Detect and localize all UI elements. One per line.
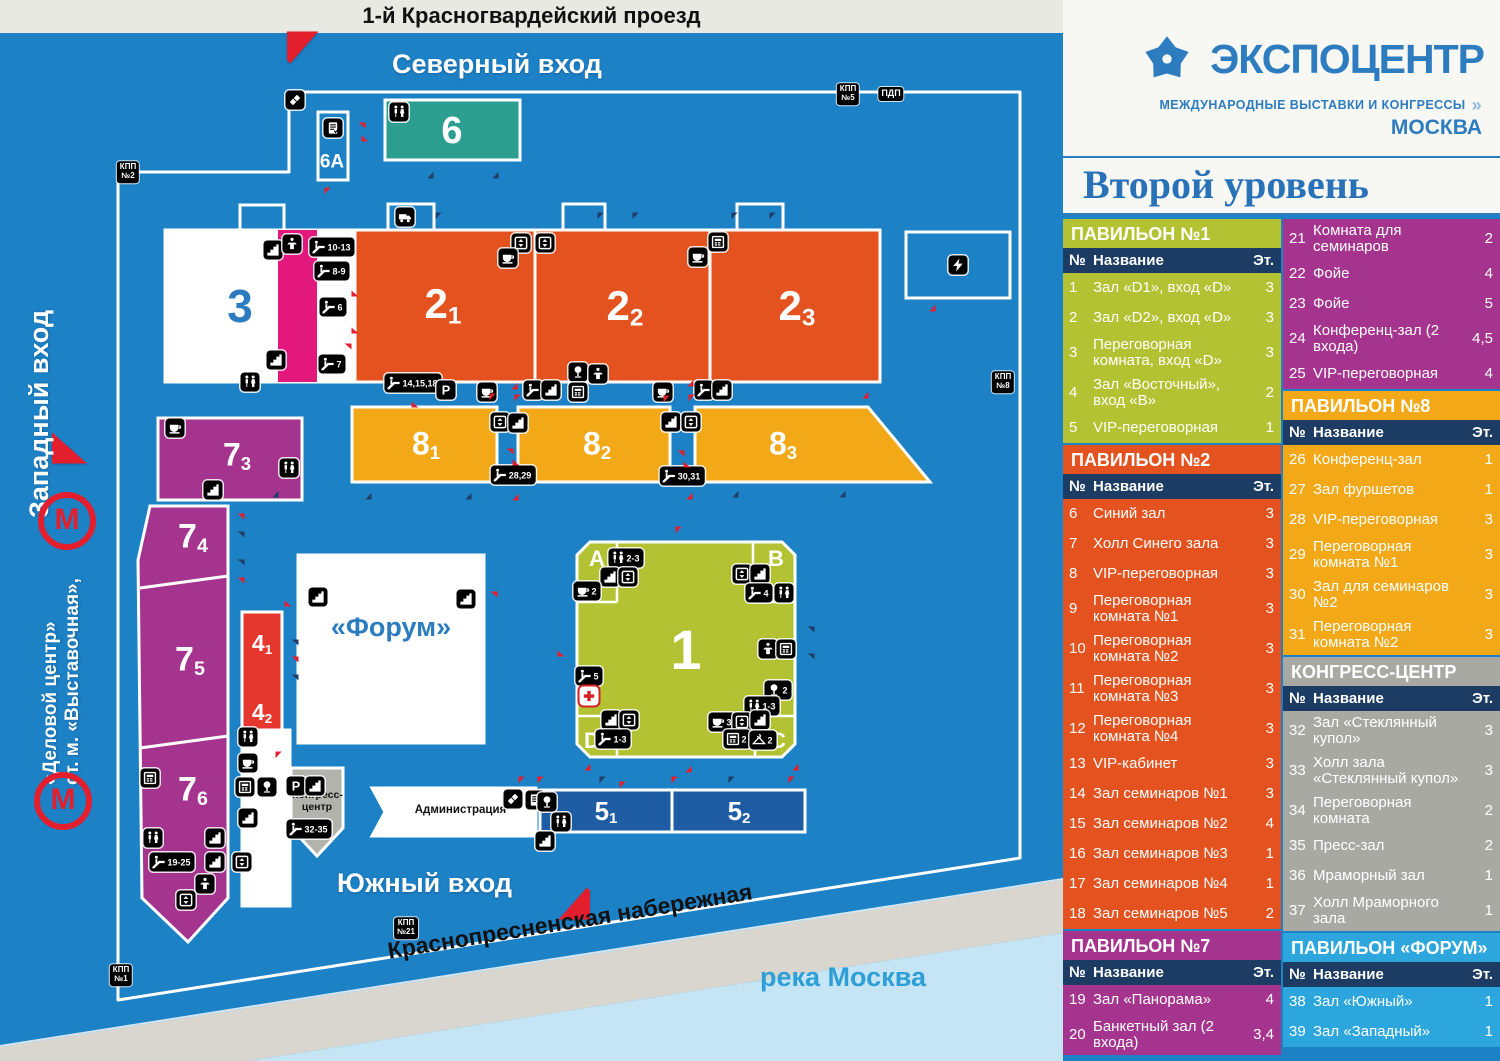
chevron-right-icon: » [1472,96,1482,114]
cell: 3 [1465,723,1500,739]
cell: Банкетный зал (2 входа) [1093,1019,1246,1051]
column-header: Название [1313,690,1465,707]
cell: 32 [1283,723,1313,739]
atm-icon [141,769,160,788]
cell: Зал «Южный» [1313,994,1465,1010]
legend-section-pav1: ПАВИЛЬОН №1№НазваниеЭт.1Зал «D1», вход «… [1063,219,1281,443]
building-label-82: 82 [583,428,611,463]
direction-arrow [362,125,379,142]
cell: Переговорная комната, вход «D» [1093,337,1246,369]
table-row: 8VIP-переговорная3 [1063,559,1281,589]
cell: Зал семинаров №3 [1093,846,1246,862]
building-label-3: 3 [227,283,253,329]
direction-arrow [262,481,279,498]
table-row: 32Зал «Стеклянный купол»3 [1283,711,1500,751]
building-label-1: 1 [670,622,701,678]
section-title: КОНГРЕСС-ЦЕНТР [1283,657,1500,686]
cell: 3 [1246,786,1281,802]
cell: 38 [1283,994,1313,1010]
table-row: 4Зал «Восточный», вход «В»2 [1063,373,1281,413]
table-row: 20Банкетный зал (2 входа)3,4 [1063,1015,1281,1055]
table-row: 39Зал «Западный»1 [1283,1017,1500,1047]
cell: Переговорная комната №1 [1313,539,1465,571]
table-header-row: №НазваниеЭт. [1283,686,1500,711]
direction-arrow [417,162,434,179]
table-header-row: №НазваниеЭт. [1063,474,1281,499]
cell: Конференц-зал [1313,452,1465,468]
table-row: 23Фойе5 [1283,289,1500,319]
lift-icon [536,234,555,253]
direction-arrow [285,590,302,607]
column-header: Название [1093,252,1246,269]
direction-arrow [770,213,787,230]
west-entrance-arrow [55,381,135,472]
direction-arrow [228,532,245,549]
cell: Фойе [1313,266,1465,282]
cell: Фойе [1313,296,1465,312]
cell: 21 [1283,231,1313,247]
direction-arrow [497,449,514,466]
table-row: 30Зал для семинаров №23 [1283,575,1500,615]
cell: 31 [1283,627,1313,643]
column-header: № [1063,478,1093,495]
legend-section-pav7cont: 21Комната для семинаров222Фойе423Фойе524… [1283,219,1500,389]
logo-tagline: МЕЖДУНАРОДНЫЕ ВЫСТАВКИ И КОНГРЕССЫ» [1063,92,1500,114]
cell: 25 [1283,366,1313,382]
cell: Синий зал [1093,506,1246,522]
cell: Переговорная комната №2 [1313,619,1465,651]
direction-arrow [798,627,815,644]
street-name-top: 1-й Красногвардейский проезд [0,0,1063,33]
cell: 3 [1063,345,1093,361]
cell: 1 [1465,903,1500,919]
cell: 35 [1283,838,1313,854]
table-row: 13VIP-кабинет3 [1063,749,1281,779]
building-label-22: 22 [607,285,644,331]
table-row: 37Холл Мраморного зала1 [1283,891,1500,931]
table-row: 18Зал семинаров №52 [1063,899,1281,929]
direction-arrow [633,213,650,230]
cell: 23 [1283,296,1313,312]
cell: VIP-переговорная [1093,566,1246,582]
cell: 15 [1063,816,1093,832]
direction-arrow [722,481,739,498]
direction-arrow [455,483,472,500]
direction-arrow [919,295,936,312]
cell: 4 [1465,366,1500,382]
cell: Зал «Восточный», вход «В» [1093,377,1246,409]
stairs-icon [267,351,286,370]
lift-icon [682,413,701,432]
legend-tables: ПАВИЛЬОН №1№НазваниеЭт.1Зал «D1», вход «… [1063,219,1500,1061]
cell: Зал «D2», вход «D» [1093,310,1246,326]
table-row: 28VIP-переговорная3 [1283,505,1500,535]
direction-arrow [515,395,532,412]
building-label-75: 75 [175,642,205,679]
direction-arrow [228,514,245,531]
building-label-73: 73 [223,439,251,474]
lift-icon [177,891,196,910]
building-7-tower [138,506,228,942]
direction-arrow [228,578,245,595]
cell: 5 [1465,296,1500,312]
cell: 2 [1465,803,1500,819]
direction-arrow [676,527,693,544]
cell: 16 [1063,846,1093,862]
atm-icon [709,233,728,252]
column-header: Эт. [1246,252,1281,269]
stairs-icon [662,413,681,432]
cup-icon [166,419,185,438]
cell: 5 [1063,420,1093,436]
column-header: Название [1093,964,1246,981]
wc-icon [390,103,409,122]
esc-icon: 1-3 [595,730,630,749]
table-row: 19Зал «Панорама»4 [1063,985,1281,1015]
direction-arrow [677,370,694,387]
cell: 3 [1246,756,1281,772]
esc-icon: 10-13 [309,238,354,257]
direction-arrow [335,344,352,361]
direction-arrow [664,396,681,413]
table-row: 36Мраморный зал1 [1283,861,1500,891]
cell: 13 [1063,756,1093,772]
building-label-41: 41 [252,632,272,656]
stairs-icon [204,481,223,500]
cell: 2 [1246,906,1281,922]
cell: 2 [1063,310,1093,326]
cell: 17 [1063,876,1093,892]
wc-icon [775,584,794,603]
building-label-21: 21 [425,283,462,329]
cell: 4 [1465,266,1500,282]
cell: 36 [1283,868,1313,884]
stairs-icon [713,381,732,400]
direction-arrow [436,213,453,230]
table-row: 38Зал «Южный»1 [1283,987,1500,1017]
direction-arrow [282,657,299,674]
building-label-23: 23 [779,285,816,331]
cell: 3 [1465,763,1500,779]
checkpoint-badge: КПП №8 [992,371,1014,393]
cell: 12 [1063,721,1093,737]
checkpoint-badge: КПП №21 [394,917,418,939]
building-label-42: 42 [252,701,272,725]
table-row: 2Зал «D2», вход «D»3 [1063,303,1281,333]
lift-icon [619,568,638,587]
cell: 1 [1465,994,1500,1010]
cell: Зал «D1», вход «D» [1093,280,1246,296]
legend-column-left: ПАВИЛЬОН №1№НазваниеЭт.1Зал «D1», вход «… [1063,219,1281,1061]
podium-icon [759,640,778,659]
section-title: ПАВИЛЬОН №2 [1063,445,1281,474]
cross-icon [580,687,599,706]
cell: 11 [1063,681,1093,697]
atm-icon: 2 [723,730,750,749]
stairs-icon [457,590,476,609]
esc-icon: 4 [745,584,772,603]
cell: Зал «Западный» [1313,1024,1465,1040]
stairs-icon [309,588,328,607]
table-row: 31Переговорная комната №23 [1283,615,1500,655]
direction-arrow [684,451,701,468]
table-row: 5VIP-переговорная1 [1063,413,1281,443]
table-header-row: №НазваниеЭт. [1283,420,1500,445]
reg-icon [324,119,343,138]
cell: 3 [1246,721,1281,737]
direction-arrow [600,777,617,794]
cell: 3 [1246,681,1281,697]
legend-section-pav2: ПАВИЛЬОН №2№НазваниеЭт.6Синий зал37Холл … [1063,445,1281,929]
cell: Переговорная комната №1 [1093,593,1246,625]
cell: 4 [1063,385,1093,401]
river-label: река Москва [760,962,926,993]
section-title: ПАВИЛЬОН №8 [1283,391,1500,420]
cell: 30 [1283,587,1313,603]
cell: 2 [1465,231,1500,247]
lift-icon [233,853,252,872]
wc-icon [144,829,163,848]
direction-arrow [675,756,692,773]
building-label-6A: 6A [320,153,344,172]
cell: 22 [1283,266,1313,282]
table-row: 21Комната для семинаров2 [1283,219,1500,259]
table-row: 11Переговорная комната №33 [1063,669,1281,709]
logo-area: ЭКСПОЦЕНТР МЕЖДУНАРОДНЫЕ ВЫСТАВКИ И КОНГ… [1063,0,1500,158]
direction-arrow [519,777,536,794]
building-label-76: 76 [178,772,208,809]
cup-icon: 2 [573,582,600,601]
cell: Пресс-зал [1313,838,1465,854]
table-row: 12Переговорная комната №43 [1063,709,1281,749]
column-header: Эт. [1465,424,1500,441]
legend-section-pav7: ПАВИЛЬОН №7№НазваниеЭт.19Зал «Панорама»4… [1063,931,1281,1055]
column-header: Эт. [1246,478,1281,495]
lift-icon [733,565,752,584]
cup-icon [239,754,258,773]
stairs-icon [206,829,225,848]
legend-column-right: 21Комната для семинаров222Фойе423Фойе524… [1283,219,1500,1061]
cell: 39 [1283,1024,1313,1040]
table-row: 16Зал семинаров №31 [1063,839,1281,869]
cell: Зал «Стеклянный купол» [1313,715,1465,747]
table-row: 29Переговорная комната №13 [1283,535,1500,575]
cell: Мраморный зал [1313,868,1465,884]
direction-arrow [620,782,637,799]
direction-arrow [481,592,498,609]
section-title: ПАВИЛЬОН №1 [1063,219,1281,248]
ticket-icon [286,91,305,110]
table-row: 6Синий зал3 [1063,499,1281,529]
direction-arrow [501,373,518,390]
cell: 3,4 [1246,1027,1281,1043]
coat-icon: 2 [749,731,776,750]
cell: 20 [1063,1027,1093,1043]
forum-building [298,555,484,743]
cell: Холл Синего зала [1093,536,1246,552]
cup-icon [499,249,518,268]
cell: 19 [1063,992,1093,1008]
table-row: 34Переговорная комната2 [1283,791,1500,831]
cell: Зал семинаров №5 [1093,906,1246,922]
table-row: 10Переговорная комната №23 [1063,629,1281,669]
cell: 3 [1246,536,1281,552]
cell: 3 [1465,547,1500,563]
checkpoint-badge: ПДП [878,87,903,101]
table-header-row: №НазваниеЭт. [1063,960,1281,985]
cell: 1 [1063,280,1093,296]
legend-section-congress: КОНГРЕСС-ЦЕНТР№НазваниеЭт.32Зал «Стеклян… [1283,657,1500,931]
building-label-81: 81 [412,428,440,463]
cell: 27 [1283,482,1313,498]
lift-icon [491,413,510,432]
lamp-icon [538,793,557,812]
table-row: 33Холл зала «Стеклянный купол»3 [1283,751,1500,791]
cell: Конференц-зал (2 входа) [1313,323,1465,355]
cell: 3 [1246,601,1281,617]
direction-arrow [598,213,615,230]
cell: 3 [1465,587,1500,603]
expocentre-logo-icon [1134,26,1200,92]
west-entrance-label: Западный вход [24,328,55,518]
wc-icon [239,728,258,747]
site-map: 1-й Красногвардейский проезд Северный вх… [0,0,1063,1061]
section-title: ПАВИЛЬОН №7 [1063,931,1281,960]
cell: 3 [1465,512,1500,528]
table-row: 7Холл Синего зала3 [1063,529,1281,559]
cell: VIP-кабинет [1093,756,1246,772]
cell: 8 [1063,566,1093,582]
page-title: Второй уровень [1063,158,1500,216]
direction-arrow [482,162,499,179]
cell: 3 [1246,566,1281,582]
esc-icon: 32-35 [286,820,331,839]
direction-arrow [829,481,846,498]
building-8-3 [695,407,930,482]
cell: VIP-переговорная [1313,512,1465,528]
cell: Холл зала «Стеклянный купол» [1313,755,1465,787]
direction-arrow [352,280,369,297]
p-icon [287,777,306,796]
p-icon [437,381,456,400]
cell: Переговорная комната №3 [1093,673,1246,705]
podium-icon [283,235,302,254]
cell: Комната для семинаров [1313,223,1465,255]
atm-icon [777,640,796,659]
table-header-row: №НазваниеЭт. [1063,248,1281,273]
table-row: 3Переговорная комната, вход «D»3 [1063,333,1281,373]
cell: 24 [1283,331,1313,347]
cell: VIP-переговорная [1313,366,1465,382]
cell: 4 [1246,992,1281,1008]
table-row: 1Зал «D1», вход «D»3 [1063,273,1281,303]
direction-arrow [798,654,815,671]
esc-icon: 6 [319,298,346,317]
direction-arrow [412,391,429,408]
wc-icon: 2-3 [608,549,643,568]
cell: 1 [1246,420,1281,436]
cell: 1 [1246,876,1281,892]
stairs-icon [509,414,528,433]
podium-icon [196,875,215,894]
cell: Зал «Панорама» [1093,992,1246,1008]
direction-arrow [732,213,749,230]
cell: 4 [1246,816,1281,832]
direction-arrow [352,317,369,334]
direction-arrow [513,449,530,466]
table-row: 26Конференц-зал1 [1283,445,1500,475]
cell: 37 [1283,903,1313,919]
direction-arrow [502,484,519,501]
table-row: 25VIP-переговорная4 [1283,359,1500,389]
direction-arrow [355,483,372,500]
column-header: Эт. [1465,690,1500,707]
table-header-row: №НазваниеЭт. [1283,962,1500,987]
cell: 28 [1283,512,1313,528]
direction-arrow [282,640,299,657]
column-header: № [1283,966,1313,983]
cell: 1 [1465,868,1500,884]
column-header: Название [1313,966,1465,983]
logo-wordmark: ЭКСПОЦЕНТР [1210,39,1484,80]
wc-icon [241,373,260,392]
esc-icon: 8-9 [314,262,349,281]
column-header: № [1063,964,1093,981]
lamp-icon [258,778,277,797]
cell: 3 [1246,310,1281,326]
cell: Холл Мраморного зала [1313,895,1465,927]
direction-arrow [782,754,799,771]
cell: Зал фуршетов [1313,482,1465,498]
building-label-74: 74 [178,519,208,556]
direction-arrow [672,777,689,794]
cell: 7 [1063,536,1093,552]
stairs-icon [602,711,621,730]
zap-icon [949,256,968,275]
stairs-icon [206,853,225,872]
legend-section-pav8: ПАВИЛЬОН №8№НазваниеЭт.26Конференц-зал12… [1283,391,1500,655]
table-row: 24Конференц-зал (2 входа)4,5 [1283,319,1500,359]
column-header: № [1283,690,1313,707]
direction-arrow [282,675,299,692]
esc-icon: 28,29 [491,466,536,485]
stairs-icon [601,568,620,587]
cell: 3 [1246,280,1281,296]
cell: 1 [1465,452,1500,468]
cell: 14 [1063,786,1093,802]
table-row: 27Зал фуршетов1 [1283,475,1500,505]
column-header: № [1063,252,1093,269]
metro-stations-label: ст. м. «Выставочная», «Деловой центр» [40,555,84,785]
cell: 33 [1283,763,1313,779]
table-row: 22Фойе4 [1283,259,1500,289]
expocentre-level-map-page: 1-й Красногвардейский проезд Северный вх… [0,0,1500,1061]
table-row: 9Переговорная комната №13 [1063,589,1281,629]
stairs-icon [542,381,561,400]
column-header: Эт. [1465,966,1500,983]
truck-icon [396,208,415,227]
direction-arrow [538,777,555,794]
direction-arrow [325,188,342,205]
esc-icon: 19-25 [149,853,194,872]
direction-arrow [789,777,806,794]
section-title: ПАВИЛЬОН «ФОРУМ» [1283,933,1500,962]
cell: 6 [1063,506,1093,522]
cell: Переговорная комната №4 [1093,713,1246,745]
stairs-icon [306,777,325,796]
cell: 4,5 [1465,331,1500,347]
cell: 3 [1465,627,1500,643]
